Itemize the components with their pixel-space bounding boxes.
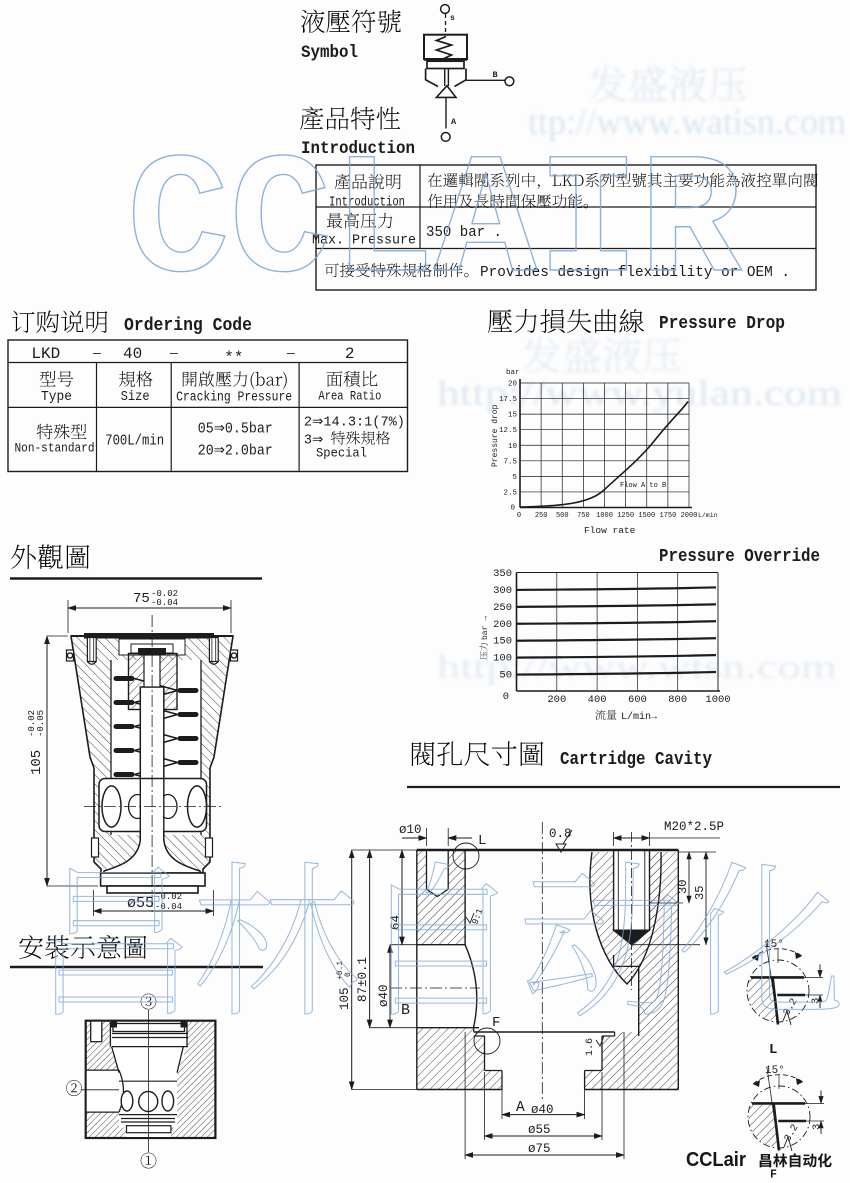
svg-text:Special: Special — [316, 446, 367, 461]
svg-text:3: 3 — [811, 1124, 823, 1130]
svg-text:Non-standard: Non-standard — [15, 442, 95, 456]
svg-text:200: 200 — [493, 619, 512, 631]
svg-text:Flow A to B: Flow A to B — [620, 482, 666, 490]
svg-text:Type: Type — [41, 390, 72, 405]
svg-text:L: L — [769, 1042, 777, 1058]
svg-text:s: s — [450, 14, 455, 23]
svg-text:15: 15 — [508, 412, 518, 420]
svg-text:600: 600 — [628, 694, 647, 706]
svg-text:Cartridge Cavity: Cartridge Cavity — [560, 750, 712, 770]
svg-text:500: 500 — [556, 512, 569, 520]
svg-text:20: 20 — [508, 381, 518, 389]
svg-text:LKD: LKD — [31, 345, 60, 363]
svg-text:ø10: ø10 — [399, 823, 422, 837]
svg-text:40: 40 — [123, 345, 142, 363]
svg-text:1750: 1750 — [659, 512, 676, 520]
svg-text:5: 5 — [512, 474, 517, 482]
svg-text:105: 105 — [29, 750, 45, 775]
svg-text:0: 0 — [344, 972, 353, 977]
svg-text:—: — — [92, 346, 101, 361]
svg-text:800: 800 — [668, 694, 687, 706]
svg-text:A: A — [516, 1100, 525, 1116]
svg-text:CCLAIR: CCLAIR — [127, 127, 743, 322]
svg-text:3.2: 3.2 — [783, 1123, 802, 1144]
svg-text:2.5: 2.5 — [503, 489, 517, 497]
svg-text:B: B — [493, 70, 498, 80]
svg-text:2⇒14.3:1(7%): 2⇒14.3:1(7%) — [304, 416, 405, 431]
svg-text:0: 0 — [503, 691, 509, 703]
svg-text:250: 250 — [493, 602, 512, 614]
svg-text:L: L — [478, 833, 486, 849]
svg-text:-0.04: -0.04 — [151, 598, 178, 608]
svg-text:**: ** — [224, 349, 243, 367]
svg-text:A: A — [451, 117, 457, 127]
svg-text:750: 750 — [577, 512, 590, 520]
svg-text:Symbol: Symbol — [301, 43, 358, 63]
svg-text:1000: 1000 — [596, 512, 613, 520]
svg-text:Pressure drop: Pressure drop — [491, 404, 500, 467]
svg-text:L/min→: L/min→ — [621, 711, 657, 723]
svg-text:50: 50 — [499, 670, 512, 682]
svg-text:20⇒2.0bar: 20⇒2.0bar — [198, 444, 273, 460]
svg-text:F: F — [492, 1015, 500, 1031]
svg-text:75: 75 — [133, 591, 150, 607]
svg-text:150: 150 — [493, 636, 512, 648]
svg-text:Area Ratio: Area Ratio — [318, 389, 381, 404]
svg-text:1250: 1250 — [617, 512, 634, 520]
svg-text:17.5: 17.5 — [499, 396, 518, 404]
svg-text:35: 35 — [693, 886, 707, 900]
svg-text:Size: Size — [121, 390, 150, 405]
svg-text:2000: 2000 — [681, 512, 698, 520]
svg-text:3: 3 — [810, 998, 822, 1004]
svg-text:F: F — [770, 1169, 777, 1182]
svg-text:15°: 15° — [765, 1065, 785, 1077]
svg-text:M20*2.5P: M20*2.5P — [664, 820, 724, 834]
svg-text:350: 350 — [493, 568, 512, 580]
svg-text:0: 0 — [517, 512, 521, 520]
svg-text:L/min: L/min — [698, 512, 718, 519]
svg-text:1.6: 1.6 — [585, 1038, 596, 1056]
svg-text:0.8: 0.8 — [549, 827, 572, 841]
svg-text:400: 400 — [588, 694, 607, 706]
svg-text:250: 250 — [535, 512, 548, 520]
svg-text:2: 2 — [345, 345, 355, 363]
svg-text:ø55: ø55 — [127, 895, 154, 912]
svg-text:—: — — [286, 346, 295, 361]
svg-text:Cracking Pressure: Cracking Pressure — [176, 391, 292, 406]
svg-text:105: 105 — [338, 987, 352, 1010]
svg-text:1000: 1000 — [705, 694, 730, 706]
svg-text:300: 300 — [493, 585, 512, 597]
svg-text:B: B — [401, 1002, 410, 1019]
svg-text:700L/min: 700L/min — [105, 434, 164, 450]
svg-text:05⇒0.5bar: 05⇒0.5bar — [198, 422, 273, 438]
svg-text:-0.05: -0.05 — [36, 710, 46, 737]
svg-text:ø55: ø55 — [528, 1123, 551, 1137]
svg-text:0: 0 — [510, 505, 515, 513]
svg-text:ø40: ø40 — [377, 984, 391, 1007]
svg-text:87±0.1: 87±0.1 — [356, 957, 370, 1002]
svg-text:bar: bar — [506, 369, 520, 377]
svg-text:—: — — [169, 346, 178, 361]
svg-text:bar →: bar → — [481, 616, 490, 640]
svg-text:CCLair: CCLair — [686, 1148, 746, 1171]
svg-text:1500: 1500 — [638, 512, 655, 520]
svg-text:Flow rate: Flow rate — [584, 525, 636, 536]
svg-text:100: 100 — [493, 653, 512, 665]
svg-text:200: 200 — [547, 694, 566, 706]
svg-text:3.2: 3.2 — [782, 997, 801, 1018]
svg-text:Pressure Override: Pressure Override — [659, 546, 820, 567]
svg-text:12.5: 12.5 — [499, 427, 518, 435]
svg-text:30: 30 — [676, 880, 690, 894]
svg-text:ø75: ø75 — [528, 1142, 551, 1156]
svg-text:10: 10 — [508, 443, 518, 451]
svg-text:7.5: 7.5 — [503, 458, 517, 466]
